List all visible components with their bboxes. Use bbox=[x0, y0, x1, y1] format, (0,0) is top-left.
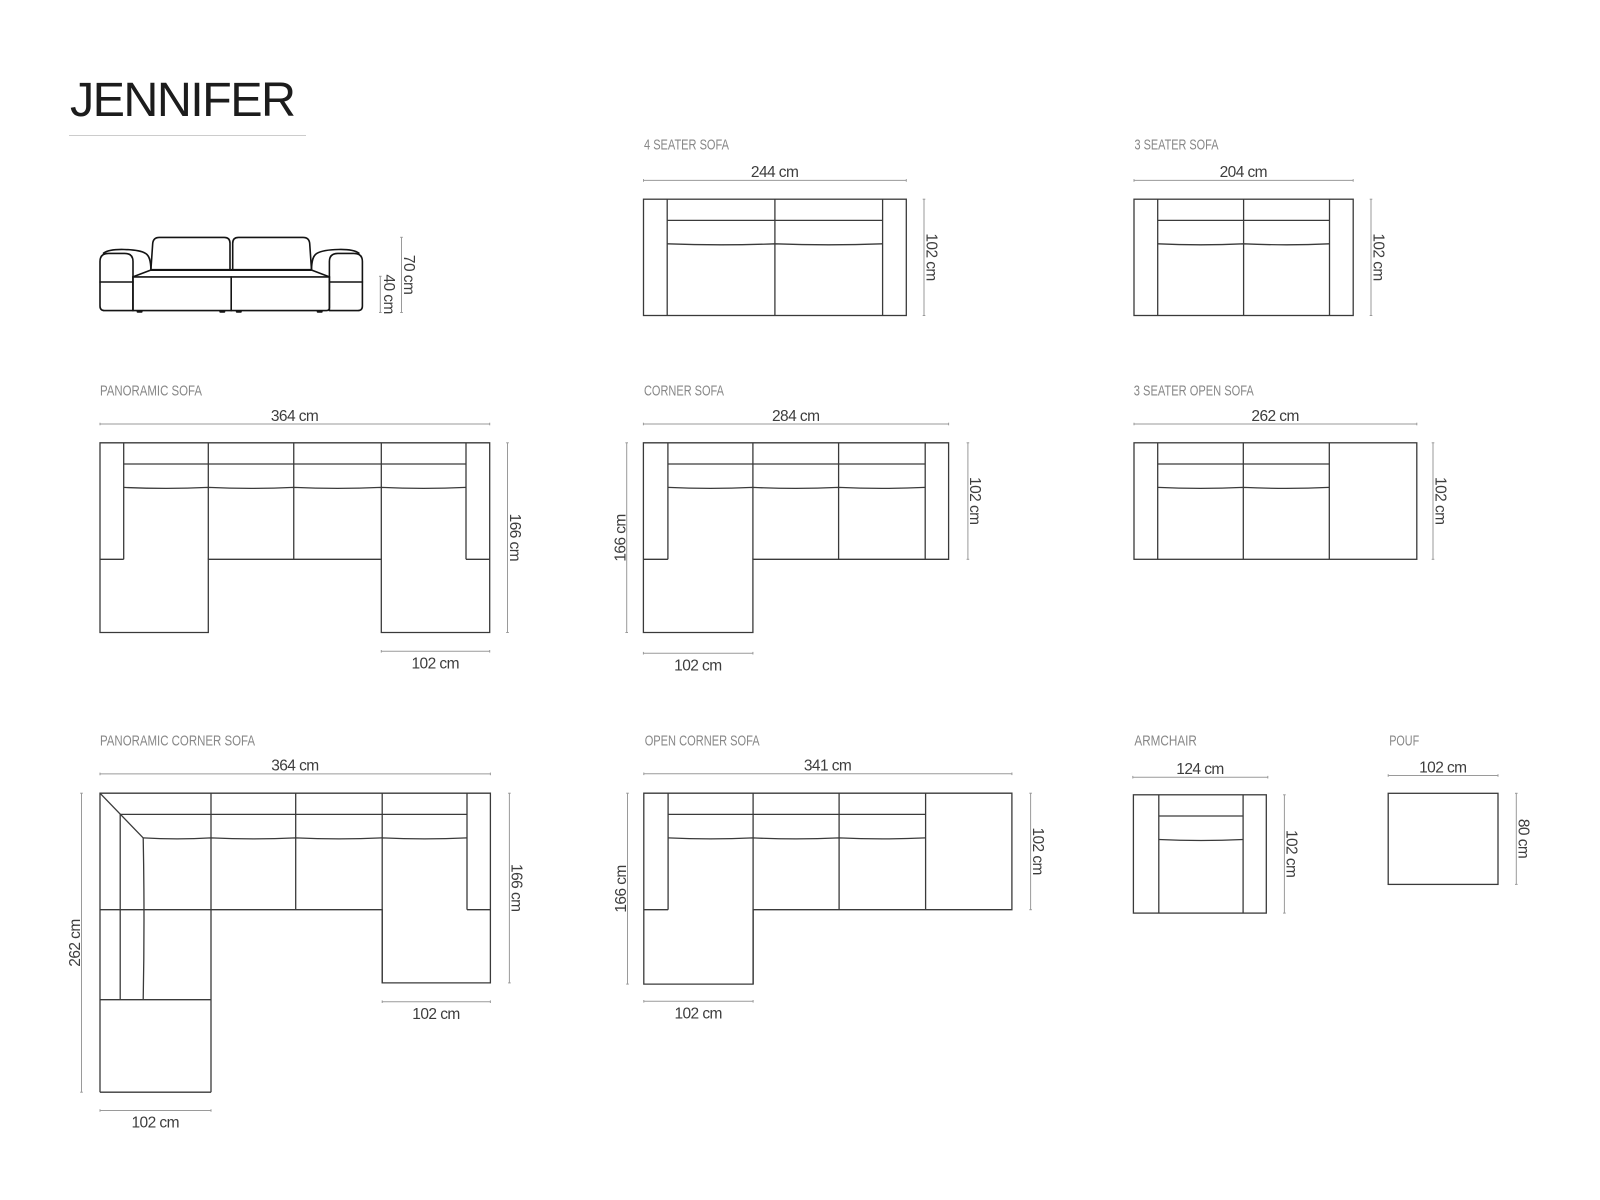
svg-text:166 cm: 166 cm bbox=[612, 514, 629, 562]
svg-text:166 cm: 166 cm bbox=[508, 864, 525, 912]
svg-text:262 cm: 262 cm bbox=[1251, 408, 1299, 425]
svg-text:CORNER SOFA: CORNER SOFA bbox=[644, 384, 724, 400]
svg-text:102 cm: 102 cm bbox=[674, 658, 722, 675]
svg-text:102 cm: 102 cm bbox=[966, 477, 983, 525]
svg-text:124 cm: 124 cm bbox=[1176, 761, 1224, 778]
svg-text:ARMCHAIR: ARMCHAIR bbox=[1134, 734, 1197, 750]
svg-text:JENNIFER: JENNIFER bbox=[70, 73, 296, 127]
svg-text:341 cm: 341 cm bbox=[804, 758, 852, 775]
svg-text:PANORAMIC CORNER SOFA: PANORAMIC CORNER SOFA bbox=[100, 734, 255, 750]
svg-text:244 cm: 244 cm bbox=[751, 164, 799, 181]
svg-text:40 cm: 40 cm bbox=[380, 274, 397, 314]
svg-text:102 cm: 102 cm bbox=[132, 1115, 180, 1132]
svg-text:166 cm: 166 cm bbox=[613, 865, 630, 913]
svg-text:102 cm: 102 cm bbox=[1369, 233, 1386, 281]
svg-text:102 cm: 102 cm bbox=[1283, 830, 1300, 878]
svg-text:364 cm: 364 cm bbox=[271, 408, 319, 425]
svg-text:PANORAMIC SOFA: PANORAMIC SOFA bbox=[100, 384, 202, 400]
svg-text:284 cm: 284 cm bbox=[772, 408, 820, 425]
svg-text:3 SEATER OPEN SOFA: 3 SEATER OPEN SOFA bbox=[1134, 384, 1254, 400]
svg-text:3 SEATER SOFA: 3 SEATER SOFA bbox=[1135, 138, 1219, 154]
svg-text:204 cm: 204 cm bbox=[1220, 164, 1268, 181]
svg-text:102 cm: 102 cm bbox=[922, 233, 939, 281]
svg-text:102 cm: 102 cm bbox=[674, 1006, 722, 1023]
svg-text:262 cm: 262 cm bbox=[67, 919, 84, 967]
svg-text:102 cm: 102 cm bbox=[1029, 827, 1046, 875]
svg-text:364 cm: 364 cm bbox=[271, 758, 319, 775]
svg-text:4 SEATER SOFA: 4 SEATER SOFA bbox=[644, 138, 729, 154]
svg-text:102 cm: 102 cm bbox=[412, 1006, 460, 1023]
svg-text:102 cm: 102 cm bbox=[412, 656, 460, 673]
svg-text:102 cm: 102 cm bbox=[1419, 759, 1467, 776]
svg-text:166 cm: 166 cm bbox=[506, 514, 523, 562]
svg-text:102 cm: 102 cm bbox=[1431, 477, 1448, 525]
svg-text:80 cm: 80 cm bbox=[1515, 819, 1532, 859]
svg-text:POUF: POUF bbox=[1389, 734, 1419, 750]
svg-text:OPEN CORNER SOFA: OPEN CORNER SOFA bbox=[645, 734, 760, 750]
svg-text:70 cm: 70 cm bbox=[400, 255, 417, 295]
